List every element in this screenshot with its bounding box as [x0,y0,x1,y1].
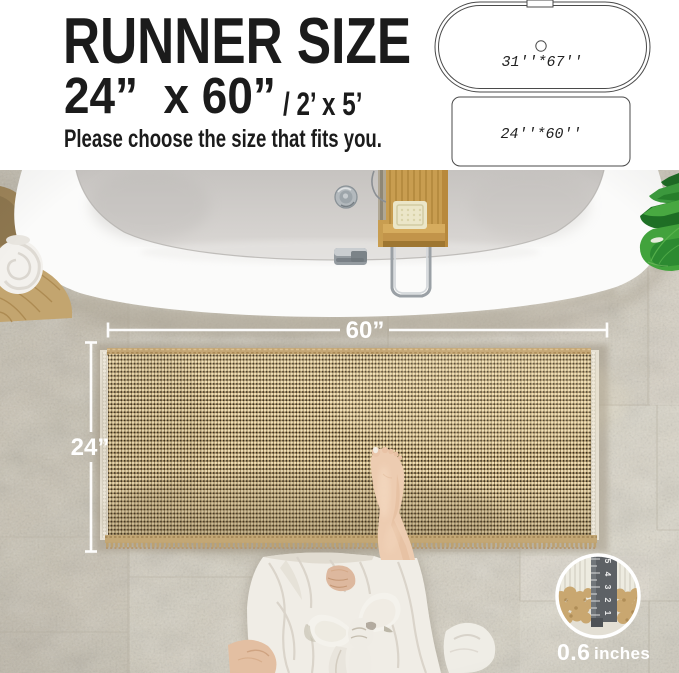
svg-text:3: 3 [603,585,613,590]
svg-text:1: 1 [603,611,613,616]
svg-text:5: 5 [603,559,613,564]
svg-text:4: 4 [603,572,613,577]
svg-text:2: 2 [603,598,613,603]
svg-text:inches: inches [594,644,650,663]
svg-text:0.6: 0.6 [557,639,590,665]
svg-text:31''*67'': 31''*67'' [501,54,582,71]
svg-text:24''*60'': 24''*60'' [500,126,581,143]
